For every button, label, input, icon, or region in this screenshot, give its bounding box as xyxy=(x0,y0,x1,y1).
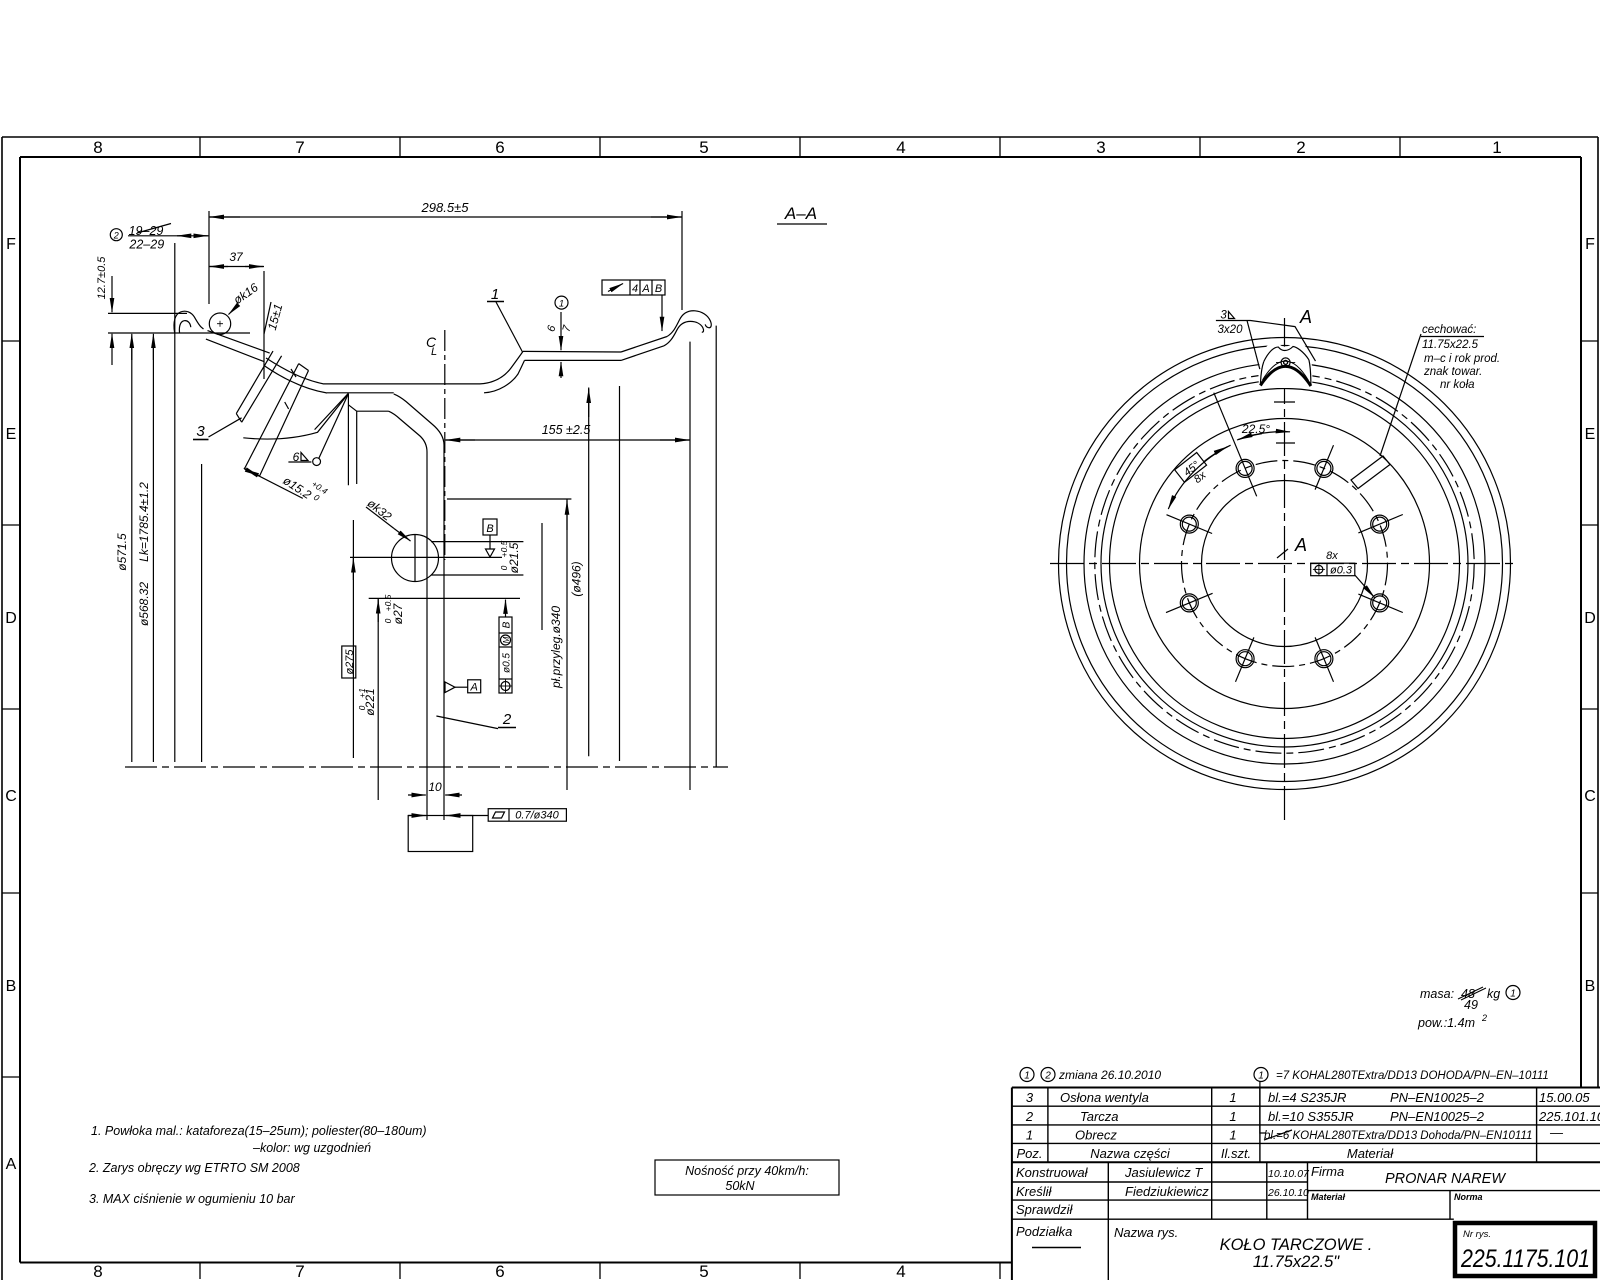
svg-text:m–c i rok prod.: m–c i rok prod. xyxy=(1424,353,1500,365)
svg-text:cechować:: cechować: xyxy=(1422,324,1476,336)
svg-text:Il.szt.: Il.szt. xyxy=(1221,1146,1251,1161)
svg-text:ø568.32: ø568.32 xyxy=(137,582,151,626)
svg-text:M: M xyxy=(502,636,511,643)
svg-text:8: 8 xyxy=(93,1262,102,1280)
svg-text:E: E xyxy=(1585,426,1596,443)
svg-text:298.5±5: 298.5±5 xyxy=(421,200,470,215)
svg-text:8: 8 xyxy=(93,138,102,157)
svg-text:B: B xyxy=(486,523,493,535)
svg-text:3: 3 xyxy=(1220,310,1227,322)
svg-text:bl.=10 S355JR: bl.=10 S355JR xyxy=(1268,1109,1354,1124)
svg-text:15.00.05: 15.00.05 xyxy=(1539,1090,1590,1105)
svg-text:D: D xyxy=(1584,610,1596,627)
svg-text:8x: 8x xyxy=(1326,550,1338,562)
svg-text:B: B xyxy=(1585,978,1596,995)
svg-text:zmiana 26.10.2010: zmiana 26.10.2010 xyxy=(1058,1068,1161,1082)
svg-text:Nazwa części: Nazwa części xyxy=(1090,1146,1171,1161)
svg-text:Konstruował: Konstruował xyxy=(1016,1165,1089,1180)
svg-text:3: 3 xyxy=(1096,138,1105,157)
svg-text:1: 1 xyxy=(1026,1128,1033,1143)
svg-text:Sprawdził: Sprawdził xyxy=(1016,1202,1073,1217)
svg-text:6: 6 xyxy=(495,1262,504,1280)
svg-text:bl.=4 S235JR: bl.=4 S235JR xyxy=(1268,1090,1346,1105)
svg-text:kg: kg xyxy=(1487,987,1500,1001)
svg-text:B: B xyxy=(6,978,17,995)
svg-text:2: 2 xyxy=(1296,138,1305,157)
svg-text:1: 1 xyxy=(1258,1071,1264,1082)
svg-text:Tarcza: Tarcza xyxy=(1080,1109,1119,1124)
svg-text:C: C xyxy=(5,788,17,805)
svg-text:pł.przyleg.ø340: pł.przyleg.ø340 xyxy=(549,606,563,689)
svg-text:A: A xyxy=(1299,307,1312,327)
svg-text:2: 2 xyxy=(1481,1013,1487,1023)
svg-text:Nośność przy 40km/h:: Nośność przy 40km/h: xyxy=(685,1164,809,1178)
svg-text:3. MAX ciśnienie w ogumieniu 1: 3. MAX ciśnienie w ogumieniu 10 bar xyxy=(89,1192,296,1206)
svg-text:2: 2 xyxy=(113,230,119,240)
svg-text:Nr rys.: Nr rys. xyxy=(1463,1229,1491,1240)
svg-text:2: 2 xyxy=(1044,1071,1051,1082)
svg-text:0: 0 xyxy=(357,705,367,710)
svg-text:22–29: 22–29 xyxy=(128,238,164,252)
svg-text:KOŁO TARCZOWE .: KOŁO TARCZOWE . xyxy=(1220,1236,1373,1254)
svg-text:Poz.: Poz. xyxy=(1016,1146,1042,1161)
svg-text:225.1175.101: 225.1175.101 xyxy=(1460,1245,1590,1273)
svg-text:3x20: 3x20 xyxy=(1218,324,1244,336)
svg-text:50kN: 50kN xyxy=(725,1179,755,1193)
svg-text:Nazwa rys.: Nazwa rys. xyxy=(1114,1225,1178,1240)
svg-text:1: 1 xyxy=(491,286,499,303)
svg-text:4: 4 xyxy=(632,283,638,295)
svg-text:2: 2 xyxy=(502,711,512,728)
svg-text:–kolor: wg uzgodnień: –kolor: wg uzgodnień xyxy=(252,1141,371,1155)
svg-text:+0.5: +0.5 xyxy=(383,594,393,611)
svg-text:26.10.10: 26.10.10 xyxy=(1267,1187,1309,1199)
svg-text:1: 1 xyxy=(1229,1128,1236,1143)
svg-text:1: 1 xyxy=(1510,989,1516,1000)
svg-text:Osłona wentyla: Osłona wentyla xyxy=(1060,1090,1149,1105)
svg-text:+0.5: +0.5 xyxy=(499,540,509,557)
svg-text:PN–EN10025–2: PN–EN10025–2 xyxy=(1390,1109,1485,1124)
svg-text:Materiał: Materiał xyxy=(1311,1192,1346,1202)
svg-text:1: 1 xyxy=(1492,138,1501,157)
svg-text:—: — xyxy=(1549,1125,1564,1140)
svg-text:7: 7 xyxy=(295,1262,304,1280)
svg-text:Fiedziukiewicz: Fiedziukiewicz xyxy=(1125,1184,1209,1199)
svg-text:22.5°: 22.5° xyxy=(1241,422,1270,436)
svg-text:ø0.3: ø0.3 xyxy=(1330,565,1353,577)
svg-text:0: 0 xyxy=(499,565,509,570)
svg-text:A: A xyxy=(470,681,478,693)
svg-text:C: C xyxy=(1584,788,1596,805)
svg-text:4: 4 xyxy=(896,138,905,157)
svg-text:Firma: Firma xyxy=(1311,1164,1344,1179)
svg-text:37: 37 xyxy=(229,250,244,264)
svg-text:11.75x22.5: 11.75x22.5 xyxy=(1422,339,1479,351)
svg-text:2: 2 xyxy=(1025,1109,1034,1124)
svg-text:Norma: Norma xyxy=(1454,1192,1483,1202)
svg-text:+1: +1 xyxy=(357,688,367,698)
svg-text:49: 49 xyxy=(1464,998,1478,1012)
svg-text:A: A xyxy=(641,283,649,295)
svg-text:L: L xyxy=(431,346,437,358)
svg-text:1: 1 xyxy=(1229,1109,1236,1124)
svg-text:1: 1 xyxy=(1229,1090,1236,1105)
svg-text:(ø496): (ø496) xyxy=(570,561,584,596)
svg-text:Kreślił: Kreślił xyxy=(1016,1184,1053,1199)
svg-text:=7 KOHAL280TExtra/DD13 DOHODA/: =7 KOHAL280TExtra/DD13 DOHODA/PN–EN–1011… xyxy=(1276,1070,1549,1082)
svg-text:ø21.5: ø21.5 xyxy=(507,542,521,573)
svg-text:PRONAR NAREW: PRONAR NAREW xyxy=(1385,1171,1506,1187)
svg-text:Podziałka: Podziałka xyxy=(1016,1224,1072,1239)
svg-text:F: F xyxy=(6,236,16,253)
svg-text:1: 1 xyxy=(1024,1071,1030,1082)
svg-text:5: 5 xyxy=(699,138,708,157)
svg-text:A–A: A–A xyxy=(784,204,817,223)
svg-text:bl.=6 KOHAL280TExtra/DD13 Doho: bl.=6 KOHAL280TExtra/DD13 Dohoda/PN–EN10… xyxy=(1264,1130,1532,1142)
svg-text:11.75x22.5": 11.75x22.5" xyxy=(1253,1253,1340,1271)
svg-text:225.101.10: 225.101.10 xyxy=(1538,1109,1600,1124)
svg-text:B: B xyxy=(502,621,513,628)
svg-text:masa:: masa: xyxy=(1420,987,1454,1001)
svg-text:3: 3 xyxy=(196,423,205,440)
svg-text:pow.:1.4m: pow.:1.4m xyxy=(1417,1016,1475,1030)
svg-text:A: A xyxy=(1294,535,1307,555)
svg-text:B: B xyxy=(655,283,662,295)
svg-text:E: E xyxy=(6,426,17,443)
svg-text:0.7/ø340: 0.7/ø340 xyxy=(515,810,559,822)
svg-text:1. Powłoka mal.: kataforeza(1: 1. Powłoka mal.: kataforeza(15–25um); po… xyxy=(91,1124,427,1138)
svg-text:3: 3 xyxy=(1026,1090,1034,1105)
svg-text:znak towar.: znak towar. xyxy=(1423,366,1482,378)
svg-text:6: 6 xyxy=(495,138,504,157)
svg-text:nr koła: nr koła xyxy=(1440,379,1475,391)
svg-text:PN–EN10025–2: PN–EN10025–2 xyxy=(1390,1090,1485,1105)
svg-text:Materiał: Materiał xyxy=(1347,1146,1394,1161)
svg-text:0: 0 xyxy=(383,618,393,623)
svg-text:155 ±2.5: 155 ±2.5 xyxy=(542,423,591,437)
svg-text:5: 5 xyxy=(699,1262,708,1280)
svg-text:ø0.5: ø0.5 xyxy=(502,653,513,673)
svg-text:7: 7 xyxy=(295,138,304,157)
svg-text:D: D xyxy=(5,610,17,627)
svg-text:F: F xyxy=(1585,236,1595,253)
svg-text:4: 4 xyxy=(896,1262,905,1280)
svg-text:Jasiulewicz T: Jasiulewicz T xyxy=(1124,1165,1203,1180)
svg-text:10.10.07: 10.10.07 xyxy=(1268,1168,1310,1180)
svg-text:Obrecz: Obrecz xyxy=(1075,1128,1117,1143)
svg-text:2. Zarys obręczy wg ETRTO SM 2: 2. Zarys obręczy wg ETRTO SM 2008 xyxy=(88,1161,300,1175)
svg-text:1: 1 xyxy=(559,299,564,310)
svg-text:ø27: ø27 xyxy=(391,602,405,624)
svg-text:10: 10 xyxy=(428,780,442,794)
svg-text:Lk=1785.4±1.2: Lk=1785.4±1.2 xyxy=(137,482,151,562)
svg-text:ø571.5: ø571.5 xyxy=(115,533,129,571)
svg-text:12.7±0.5: 12.7±0.5 xyxy=(96,256,108,300)
svg-text:A: A xyxy=(6,1156,17,1173)
